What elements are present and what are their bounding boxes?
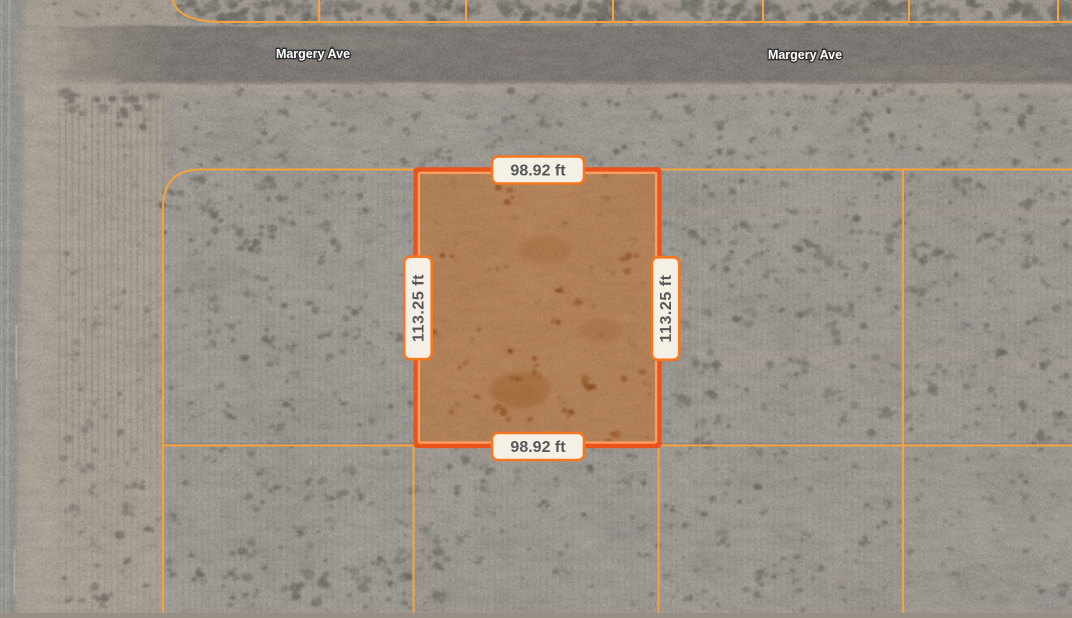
svg-text:113.25 ft: 113.25 ft bbox=[411, 274, 428, 342]
svg-text:98.92 ft: 98.92 ft bbox=[510, 163, 566, 180]
svg-text:Margery Ave: Margery Ave bbox=[768, 48, 842, 62]
svg-text:113.25 ft: 113.25 ft bbox=[658, 274, 675, 342]
svg-text:Margery Ave: Margery Ave bbox=[276, 47, 350, 61]
svg-text:98.92 ft: 98.92 ft bbox=[510, 439, 566, 456]
